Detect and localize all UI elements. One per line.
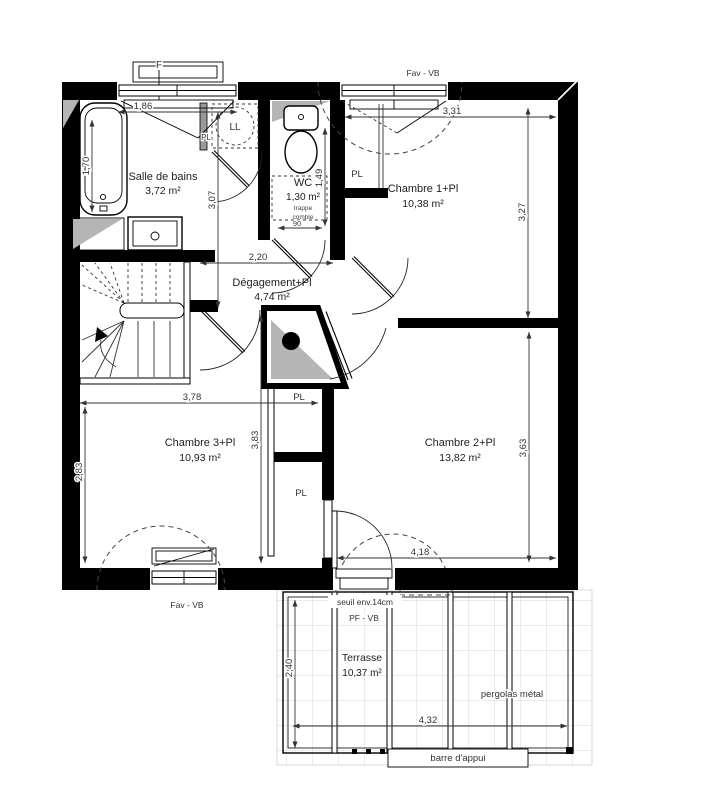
- room-area-chambre3: 10,93 m²: [179, 452, 221, 464]
- partition-ll: [200, 103, 207, 150]
- door-leaf: [332, 511, 337, 568]
- closet-label-strip-upper: PL: [293, 392, 305, 403]
- staircase: [82, 263, 184, 377]
- flue: [282, 332, 300, 350]
- window-fav-top-label: Fav - VB: [406, 68, 439, 78]
- dim-ch2-height: 3,63: [518, 439, 529, 458]
- room-area-wc: 1,30 m²: [286, 192, 321, 203]
- seuil-label: seuil env.14cm: [337, 597, 393, 607]
- closet-label-strip-lower: PL: [295, 488, 307, 499]
- door-bathroom: [212, 151, 262, 203]
- room-area-chambre2: 13,82 m²: [439, 452, 481, 464]
- dim-terrace-depth: 2,40: [284, 659, 295, 678]
- dim-terrace-width: 4,32: [419, 715, 438, 726]
- trappe-note-1: trappe: [294, 205, 313, 212]
- lower-flight: [82, 321, 170, 377]
- dim-ch2-width: 4,18: [411, 547, 430, 558]
- room-label-terrasse: Terrasse: [342, 652, 382, 664]
- room-label-degagement: Dégagement+Pl: [232, 277, 311, 289]
- terrace-tile-grid: [277, 590, 592, 765]
- terrace-door-label: PF - VB: [349, 613, 379, 623]
- dim-window-f: 1,86: [134, 101, 153, 112]
- dim-ch1-height: 3,27: [517, 203, 528, 222]
- room-area-degagement: 4,74 m²: [254, 291, 290, 303]
- dim-bathtub: 1,70: [81, 157, 92, 176]
- duct: [264, 308, 345, 386]
- floor-plan: 1,86 1,70 3,07 1,49 3,31 3,27 2,20 3,78 …: [0, 0, 710, 800]
- trappe-note-2: comble: [293, 214, 314, 221]
- dim-wc: 1,49: [314, 169, 325, 188]
- floor-plan-page: 1,86 1,70 3,07 1,49 3,31 3,27 2,20 3,78 …: [0, 0, 710, 800]
- door-chambre3: [200, 309, 260, 371]
- window-f-label: F: [156, 60, 162, 71]
- washing-machine-label: LL: [229, 122, 241, 133]
- room-label-chambre3: Chambre 3+Pl: [165, 437, 236, 449]
- dim-degagement: 2,20: [249, 252, 268, 263]
- barre-appui-label: barre d'appui: [430, 753, 485, 764]
- closet-label-bath: PL: [201, 133, 211, 142]
- closet-label-chambre1: PL: [351, 169, 363, 180]
- shelf-hatch: [73, 219, 122, 249]
- dim-bath-depth: 3,07: [207, 191, 218, 210]
- washbasin: [128, 217, 182, 250]
- door-swing-arc: [335, 511, 392, 568]
- dim-ch3-width: 3,78: [183, 392, 202, 403]
- toilet-bowl: [285, 131, 317, 173]
- room-label-wc: WC: [294, 177, 312, 189]
- room-area-salle-de-bains: 3,72 m²: [145, 185, 181, 197]
- pergola-label: pergolas métal: [481, 689, 543, 700]
- window-fav-bottom-label: Fav - VB: [170, 600, 203, 610]
- dim-ch3-right: 3,83: [250, 431, 261, 450]
- dim-ch3-left: 2,83: [74, 463, 85, 482]
- room-label-chambre2: Chambre 2+Pl: [425, 437, 496, 449]
- toilet-tank: [284, 106, 318, 130]
- upper-flight-dashed: [82, 263, 170, 303]
- room-label-salle-de-bains: Salle de bains: [128, 171, 198, 183]
- door-chambre1: [352, 257, 408, 315]
- room-area-chambre1: 10,38 m²: [402, 198, 444, 210]
- room-area-terrasse: 10,37 m²: [342, 668, 382, 679]
- room-label-chambre1: Chambre 1+Pl: [388, 183, 459, 195]
- dim-ch1-width: 3,31: [443, 106, 462, 117]
- closet-door-lower: [324, 500, 332, 558]
- stair-handrail: [120, 303, 184, 318]
